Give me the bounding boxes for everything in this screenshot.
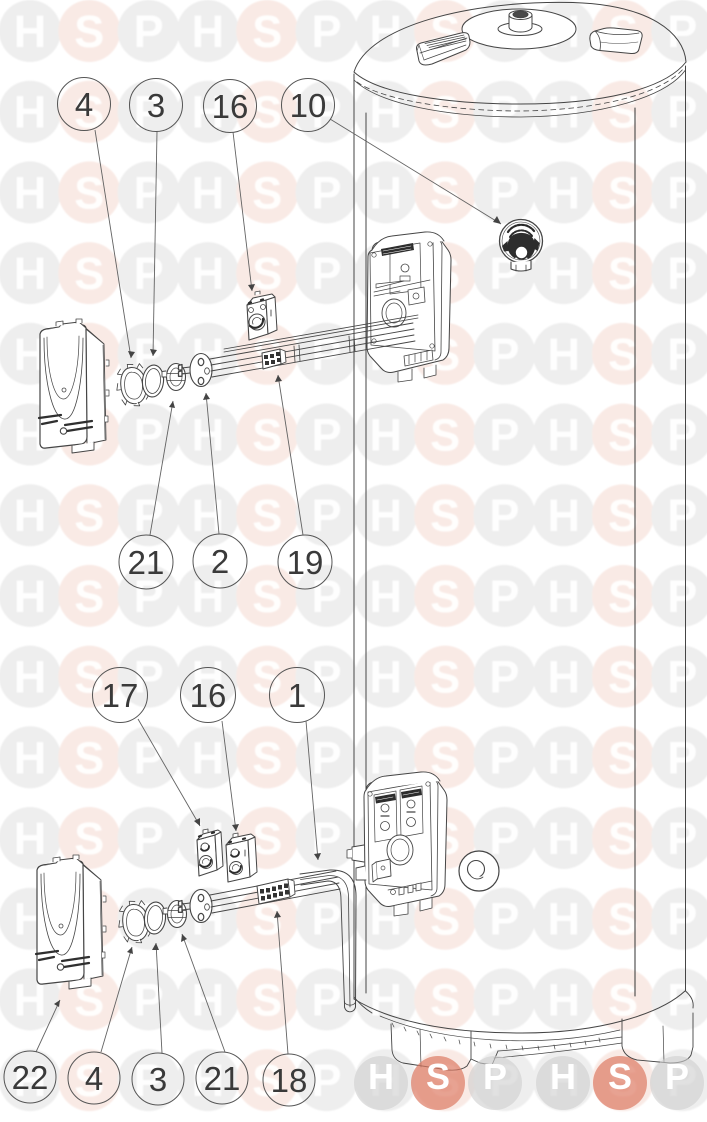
svg-text:17: 17 (102, 677, 139, 714)
svg-text:3: 3 (147, 87, 165, 124)
svg-text:S: S (426, 1056, 450, 1097)
svg-text:18: 18 (271, 1062, 308, 1099)
svg-text:19: 19 (287, 544, 324, 581)
svg-text:P: P (483, 1056, 507, 1097)
svg-text:P: P (665, 1056, 689, 1097)
svg-text:S: S (608, 1056, 632, 1097)
svg-text:21: 21 (204, 1060, 241, 1097)
svg-text:H: H (368, 1056, 394, 1097)
svg-text:21: 21 (128, 544, 165, 581)
svg-text:3: 3 (149, 1061, 167, 1098)
svg-text:4: 4 (85, 1060, 103, 1097)
svg-text:10: 10 (290, 87, 327, 124)
svg-text:1: 1 (288, 677, 306, 714)
svg-text:H: H (550, 1056, 576, 1097)
svg-text:22: 22 (12, 1059, 49, 1096)
svg-text:2: 2 (211, 543, 229, 580)
svg-text:4: 4 (75, 86, 93, 123)
svg-text:16: 16 (212, 88, 249, 125)
svg-text:16: 16 (190, 677, 227, 714)
